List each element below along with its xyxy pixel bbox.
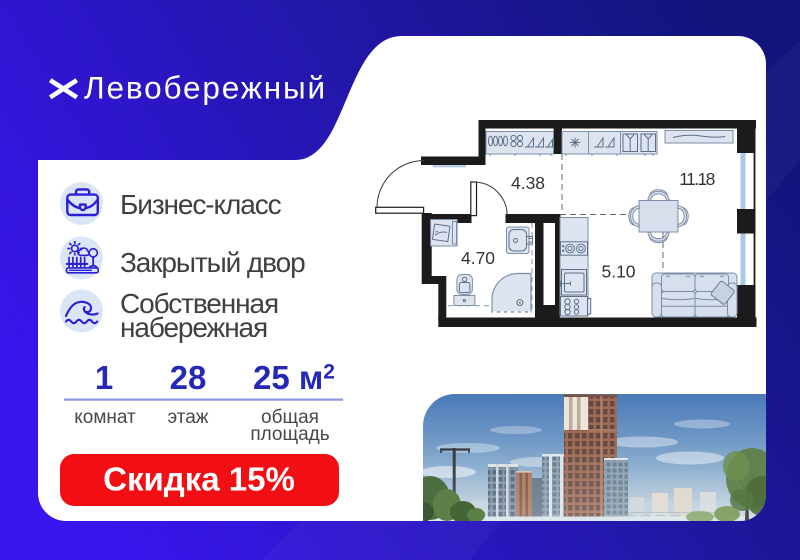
svg-text:Бизнес-класс: Бизнес-класс — [120, 189, 282, 220]
svg-text:1: 1 — [95, 359, 113, 396]
svg-text:28: 28 — [170, 359, 207, 396]
svg-text:набережная: набережная — [120, 312, 267, 343]
svg-text:Скидка 15%: Скидка 15% — [103, 461, 295, 498]
svg-text:Левобережный: Левобережный — [84, 69, 327, 105]
svg-text:5.10: 5.10 — [601, 262, 635, 282]
svg-text:4.38: 4.38 — [511, 173, 545, 193]
svg-text:этаж: этаж — [167, 407, 208, 428]
svg-text:11.18: 11.18 — [679, 169, 714, 189]
svg-text:4.70: 4.70 — [461, 248, 495, 268]
svg-text:комнат: комнат — [74, 407, 136, 428]
svg-text:площадь: площадь — [250, 424, 329, 445]
svg-text:25 м2: 25 м2 — [253, 359, 335, 396]
svg-text:Закрытый двор: Закрытый двор — [120, 247, 305, 278]
